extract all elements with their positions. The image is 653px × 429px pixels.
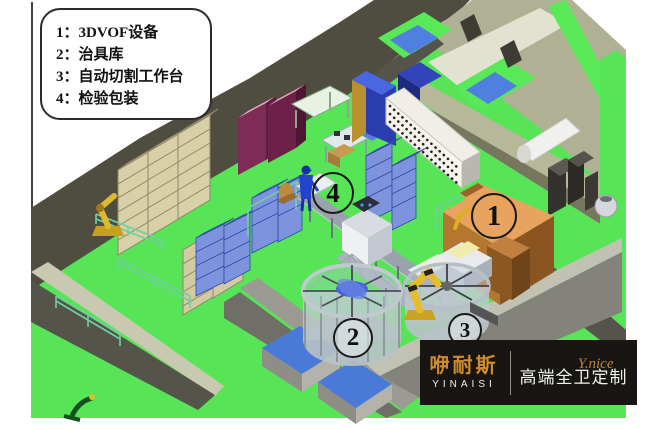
legend-item-3: 3：自动切割工作台	[56, 66, 210, 88]
legend-box: 1：3DVOF设备 2：治具库 3：自动切割工作台 4：检验包装	[40, 8, 212, 120]
brand-watermark: 咿耐斯 YINAISI Y.nice 高端全卫定制	[420, 340, 637, 405]
marker-1: 1	[471, 193, 517, 239]
marker-2: 2	[333, 318, 373, 358]
brand-name-cn: 咿耐斯	[430, 355, 499, 377]
brand-right: Y.nice 高端全卫定制	[520, 357, 628, 388]
legend-item-2: 2：治具库	[56, 44, 210, 66]
brand-divider	[510, 351, 511, 395]
brand-left: 咿耐斯 YINAISI	[430, 355, 499, 391]
brand-tagline: 高端全卫定制	[520, 368, 628, 388]
brand-name-en: YINAISI	[432, 379, 496, 391]
legend-item-4: 4：检验包装	[56, 88, 210, 110]
factory-layout-screenshot: 1：3DVOF设备 2：治具库 3：自动切割工作台 4：检验包装 1 2 3 4…	[0, 0, 653, 429]
marker-4: 4	[312, 172, 354, 214]
legend-item-1: 1：3DVOF设备	[56, 22, 210, 44]
